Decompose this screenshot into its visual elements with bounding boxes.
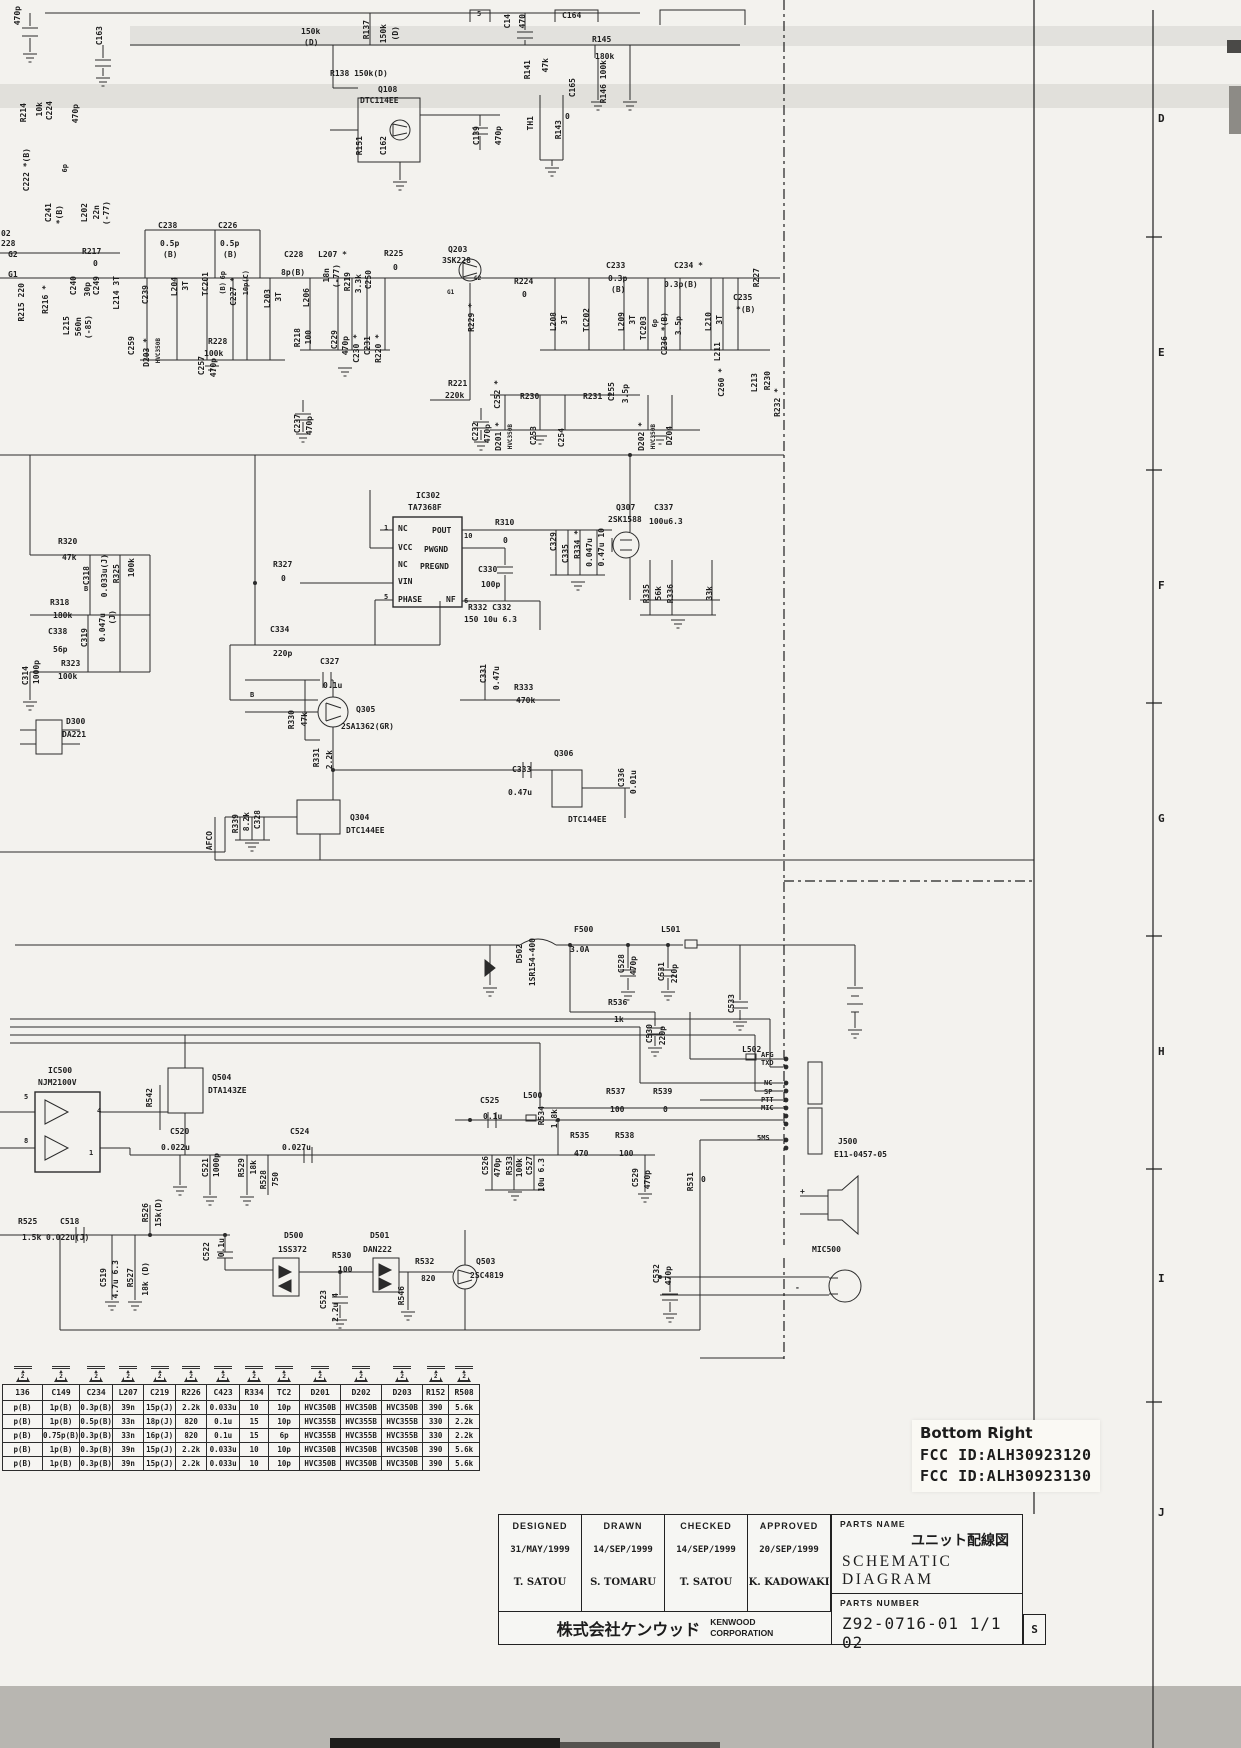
table-header-cell: R334 bbox=[240, 1385, 269, 1401]
component-label: C314 bbox=[22, 666, 30, 685]
component-label: 220k bbox=[445, 392, 464, 400]
table-cell: 5.6k bbox=[449, 1457, 480, 1471]
frame-row-letter: G bbox=[1158, 812, 1165, 825]
table-cell: 10 bbox=[240, 1457, 269, 1471]
component-label: C234 * bbox=[674, 262, 703, 270]
component-label: R143 bbox=[555, 120, 563, 139]
component-label: 470p bbox=[665, 1266, 673, 1285]
component-label: L211 bbox=[714, 342, 722, 361]
component-label: 5 bbox=[384, 594, 388, 601]
component-label: 0.3p bbox=[608, 275, 627, 283]
note-2-triangle-icon: 2 bbox=[429, 1370, 443, 1382]
table-cell: 33n bbox=[113, 1429, 144, 1443]
note-2-triangle-icon: 2 bbox=[89, 1370, 103, 1382]
component-label: 220p bbox=[273, 650, 292, 658]
approval-name: K. KADOWAKI bbox=[748, 1569, 830, 1588]
component-label: C236 *(B) bbox=[661, 312, 669, 355]
component-label: 4.7u 6.3 bbox=[112, 1260, 120, 1299]
company-name-en: KENWOOD CORPORATION bbox=[710, 1617, 773, 1638]
component-label: POUT bbox=[432, 527, 451, 535]
component-label: (B) bbox=[163, 251, 177, 259]
component-label: R546 bbox=[398, 1286, 406, 1305]
component-label: R225 bbox=[384, 250, 403, 258]
component-label: G1 bbox=[447, 290, 454, 296]
component-label: 470p bbox=[342, 336, 350, 355]
component-label: 8p(B) bbox=[281, 269, 305, 277]
component-label: 2.2u 4 bbox=[332, 1293, 340, 1322]
component-label: C518 bbox=[60, 1218, 79, 1226]
component-label: C524 bbox=[290, 1128, 309, 1136]
component-label: C231 bbox=[364, 336, 372, 355]
component-label: (D) bbox=[304, 39, 318, 47]
component-label: 02 bbox=[1, 230, 11, 238]
component-label: R335 bbox=[643, 584, 651, 603]
component-label: 18n bbox=[323, 268, 331, 282]
component-label: NC bbox=[398, 525, 408, 533]
note-triangle-cell: 2 bbox=[423, 1362, 449, 1385]
component-label: - bbox=[795, 1284, 800, 1292]
company-en-line1: KENWOOD bbox=[710, 1617, 755, 1627]
component-label: E11-0457-05 bbox=[834, 1151, 887, 1159]
component-label: 3.5p bbox=[622, 384, 630, 403]
table-cell: 10p bbox=[269, 1401, 300, 1415]
component-label: 228 bbox=[1, 240, 15, 248]
sheet-mark-box: S bbox=[1023, 1614, 1046, 1645]
table-cell: 390 bbox=[423, 1443, 449, 1457]
component-label: R318 bbox=[50, 599, 69, 607]
component-label: R230 bbox=[764, 371, 772, 390]
component-label: C529 bbox=[632, 1168, 640, 1187]
table-cell: 1p(B) bbox=[43, 1457, 80, 1471]
component-label: TXD bbox=[761, 1060, 774, 1067]
table-cell: 15p(J) bbox=[144, 1401, 176, 1415]
component-label: 5MS bbox=[757, 1135, 770, 1142]
table-cell: HVC350B bbox=[300, 1401, 341, 1415]
company-row: 株式会社ケンウッド KENWOOD CORPORATION bbox=[499, 1611, 831, 1644]
component-label: 8 bbox=[24, 1138, 28, 1145]
component-label: 1.8k bbox=[551, 1109, 559, 1128]
approval-name: T. SATOU bbox=[665, 1569, 747, 1588]
table-row: p(B)1p(B)0.5p(B)33n18p(J)8200.1u1510pHVC… bbox=[3, 1415, 480, 1429]
component-label: *(B) bbox=[736, 306, 755, 314]
component-label: R221 bbox=[448, 380, 467, 388]
component-label: 100 bbox=[610, 1106, 624, 1114]
component-label: C240 bbox=[70, 276, 78, 295]
component-label: L214 3T bbox=[113, 276, 121, 310]
component-label: R230 bbox=[520, 393, 539, 401]
component-label: 470k bbox=[516, 697, 535, 705]
component-label: 470p bbox=[72, 104, 80, 123]
table-cell: HVC355B bbox=[300, 1429, 341, 1443]
component-label: 6p bbox=[652, 319, 659, 327]
note-triangle-cell: 2 bbox=[341, 1362, 382, 1385]
component-label: G1 bbox=[8, 271, 18, 279]
frame-row-letter: E bbox=[1158, 346, 1165, 359]
approval-date: 14/SEP/1999 bbox=[582, 1539, 664, 1569]
component-label: 820 bbox=[421, 1275, 435, 1283]
parts-name-label: PARTS NAME bbox=[832, 1515, 1023, 1529]
table-cell: 390 bbox=[423, 1457, 449, 1471]
component-label: 0.3p(B) bbox=[664, 281, 698, 289]
component-label: 100p bbox=[481, 581, 500, 589]
component-label: 1k bbox=[614, 1016, 624, 1024]
component-label: 8.2k bbox=[243, 812, 251, 831]
table-row: p(B)1p(B)0.3p(B)39n15p(J)2.2k0.033u1010p… bbox=[3, 1457, 480, 1471]
component-label: R228 bbox=[208, 338, 227, 346]
table-cell: 1p(B) bbox=[43, 1415, 80, 1429]
table-cell: 0.033u bbox=[207, 1401, 240, 1415]
component-label: L210 bbox=[705, 312, 713, 331]
component-label: R539 bbox=[653, 1088, 672, 1096]
table-header-cell: C219 bbox=[144, 1385, 176, 1401]
component-label: 30p bbox=[84, 282, 92, 296]
component-label: R535 bbox=[570, 1132, 589, 1140]
table-cell: p(B) bbox=[3, 1429, 43, 1443]
component-label: R333 bbox=[514, 684, 533, 692]
component-label: C229 bbox=[331, 330, 339, 349]
note-triangle-cell: 2 bbox=[43, 1362, 80, 1385]
component-label: AFG bbox=[761, 1052, 774, 1059]
component-label: NC bbox=[764, 1080, 772, 1087]
table-cell: HVC350B bbox=[341, 1443, 382, 1457]
component-label: 0.033u(J) bbox=[101, 554, 109, 597]
component-label: 470p bbox=[644, 1170, 652, 1189]
table-cell: HVC350B bbox=[300, 1443, 341, 1457]
table-row: p(B)0.75p(B)0.3p(B)33n16p(J)8200.1u156pH… bbox=[3, 1429, 480, 1443]
note-2-triangle-icon: 2 bbox=[277, 1370, 291, 1382]
component-label: R219 bbox=[344, 272, 352, 291]
component-label: R141 bbox=[524, 60, 532, 79]
component-label: R310 bbox=[495, 519, 514, 527]
component-label: 470p bbox=[14, 6, 22, 25]
table-cell: 390 bbox=[423, 1401, 449, 1415]
component-label: G2 bbox=[8, 251, 18, 259]
component-label: C521 bbox=[202, 1158, 210, 1177]
component-label: 3T bbox=[629, 315, 637, 325]
table-row: p(B)1p(B)0.3p(B)39n15p(J)2.2k0.033u1010p… bbox=[3, 1443, 480, 1457]
component-label: C530 bbox=[646, 1024, 654, 1043]
approval-name: S. TOMARU bbox=[582, 1569, 664, 1588]
component-label: C228 bbox=[284, 251, 303, 259]
component-label: VCC bbox=[398, 544, 412, 552]
component-label: (D) bbox=[392, 26, 400, 40]
table-cell: 2.2k bbox=[176, 1457, 207, 1471]
component-label: R330 bbox=[288, 710, 296, 729]
table-cell: 1p(B) bbox=[43, 1443, 80, 1457]
table-cell: 5.6k bbox=[449, 1443, 480, 1457]
component-label: C520 bbox=[170, 1128, 189, 1136]
component-label: C164 bbox=[562, 12, 581, 20]
component-label: C328 bbox=[254, 810, 262, 829]
component-label: R227 bbox=[753, 268, 761, 287]
component-label: C259 bbox=[128, 336, 136, 355]
component-label: 3.0A bbox=[570, 946, 589, 954]
approval-column: DRAWN14/SEP/1999S. TOMARU bbox=[582, 1515, 665, 1611]
component-label: 0.047u bbox=[99, 613, 107, 642]
note-2-triangle-icon: 2 bbox=[121, 1370, 135, 1382]
approval-column: APPROVED20/SEP/1999K. KADOWAKI bbox=[748, 1515, 831, 1611]
component-label: C533 bbox=[728, 994, 736, 1013]
table-cell: 0.3p(B) bbox=[80, 1401, 113, 1415]
table-cell: 10p bbox=[269, 1443, 300, 1457]
table-header-cell: TC2 bbox=[269, 1385, 300, 1401]
component-label: 10u 6.3 bbox=[538, 1158, 546, 1192]
table-cell: 10 bbox=[240, 1443, 269, 1457]
component-label: C327 bbox=[320, 658, 339, 666]
component-label: 0.022u bbox=[161, 1144, 190, 1152]
component-label: HVC350B bbox=[651, 424, 657, 449]
component-label: C329 bbox=[550, 532, 558, 551]
note-2-triangle-icon: 2 bbox=[16, 1370, 30, 1382]
note-triangle-cell: 2 bbox=[382, 1362, 423, 1385]
component-label: 0 bbox=[281, 575, 286, 583]
component-label: 2SC4819 bbox=[470, 1272, 504, 1280]
component-label: C165 bbox=[569, 78, 577, 97]
approval-column: CHECKED14/SEP/1999T. SATOU bbox=[665, 1515, 748, 1611]
component-label: 15k(D) bbox=[155, 1198, 163, 1227]
table-cell: 2.2k bbox=[176, 1401, 207, 1415]
component-label: C318 bbox=[83, 566, 91, 585]
component-label: D202 * bbox=[638, 422, 646, 451]
component-label: Q306 bbox=[554, 750, 573, 758]
component-label: 0.1u bbox=[483, 1113, 502, 1121]
component-label: L208 bbox=[550, 312, 558, 331]
note-triangle-cell: 2 bbox=[300, 1362, 341, 1385]
component-label: R229 * bbox=[468, 303, 476, 332]
approval-role: APPROVED bbox=[748, 1515, 830, 1539]
component-label: C257 bbox=[198, 356, 206, 375]
component-label: R327 bbox=[273, 561, 292, 569]
component-label: R220 * bbox=[375, 334, 383, 363]
component-label: C14 bbox=[504, 14, 512, 28]
component-label: (-77) bbox=[333, 264, 341, 288]
component-label: R218 bbox=[294, 328, 302, 347]
component-label: *(B) bbox=[56, 205, 64, 224]
component-label: 56p bbox=[53, 646, 67, 654]
approval-column: DESIGNED31/MAY/1999T. SATOU bbox=[499, 1515, 582, 1611]
component-label: TC203 bbox=[640, 316, 648, 340]
component-label: PREGND bbox=[420, 563, 449, 571]
component-label: 220p bbox=[671, 964, 679, 983]
component-label: L209 bbox=[618, 312, 626, 331]
component-label: R542 bbox=[146, 1088, 154, 1107]
table-header-cell: C423 bbox=[207, 1385, 240, 1401]
component-label: R332 C332 bbox=[468, 604, 511, 612]
component-label: 2.2k bbox=[326, 750, 334, 769]
component-label: Q307 bbox=[616, 504, 635, 512]
component-label: 150k bbox=[380, 24, 388, 43]
component-label: 100k bbox=[516, 1158, 524, 1177]
table-cell: 16p(J) bbox=[144, 1429, 176, 1443]
component-label: Q108 bbox=[378, 86, 397, 94]
table-cell: 15p(J) bbox=[144, 1443, 176, 1457]
component-label: NC bbox=[398, 561, 408, 569]
note-triangle-cell: 2 bbox=[240, 1362, 269, 1385]
component-label: L202 bbox=[81, 203, 89, 222]
component-label: R334 * bbox=[574, 530, 582, 559]
component-label: 470p bbox=[484, 424, 492, 443]
component-label: 2SK1588 bbox=[608, 516, 642, 524]
schematic-sheet: 470pC163150k(D)R137150k(D)R138 150k(D)Q1… bbox=[0, 0, 1241, 1748]
component-label: 47k bbox=[62, 554, 76, 562]
component-label: B bbox=[84, 586, 88, 593]
frame-row-letter: D bbox=[1158, 112, 1165, 125]
table-header-cell: D201 bbox=[300, 1385, 341, 1401]
component-label: L206 bbox=[303, 288, 311, 307]
component-label: 10k bbox=[36, 102, 44, 116]
approval-date: 31/MAY/1999 bbox=[499, 1539, 581, 1569]
component-label: 0.47u bbox=[493, 666, 501, 690]
component-label: 22n bbox=[93, 205, 101, 219]
table-cell: HVC355B bbox=[341, 1429, 382, 1443]
component-label: 3.5p bbox=[675, 316, 683, 335]
component-label: C528 bbox=[618, 954, 626, 973]
approval-role: CHECKED bbox=[665, 1515, 747, 1539]
component-label: 47k bbox=[301, 712, 309, 726]
table-cell: p(B) bbox=[3, 1415, 43, 1429]
component-label: R538 bbox=[615, 1132, 634, 1140]
table-header-cell: C149 bbox=[43, 1385, 80, 1401]
component-label: L215 bbox=[63, 316, 71, 335]
component-label: C531 bbox=[658, 962, 666, 981]
component-label: R537 bbox=[606, 1088, 625, 1096]
table-header-cell: D203 bbox=[382, 1385, 423, 1401]
component-label: R532 bbox=[415, 1258, 434, 1266]
component-label: R138 150k(D) bbox=[330, 70, 388, 78]
component-label: 3T bbox=[182, 281, 190, 291]
table-cell: 5.6k bbox=[449, 1401, 480, 1415]
component-label: R151 bbox=[356, 136, 364, 155]
component-label: C334 bbox=[270, 626, 289, 634]
component-label: TC202 bbox=[583, 308, 591, 332]
component-label: 0.1u bbox=[323, 682, 342, 690]
frame-row-letter: I bbox=[1158, 1272, 1165, 1285]
component-label: J500 bbox=[838, 1138, 857, 1146]
component-label: R526 bbox=[142, 1203, 150, 1222]
component-label: 470p bbox=[306, 416, 314, 435]
component-label: C252 * bbox=[494, 380, 502, 409]
component-label: R534 bbox=[538, 1106, 546, 1125]
component-label: L502 bbox=[742, 1046, 761, 1054]
component-label: 2SA1362(GR) bbox=[341, 723, 394, 731]
component-label: 0 bbox=[93, 260, 98, 268]
table-cell: p(B) bbox=[3, 1457, 43, 1471]
company-name-jp: 株式会社ケンウッド bbox=[557, 1616, 701, 1640]
component-label: R533 bbox=[506, 1156, 514, 1175]
table-cell: 0.3p(B) bbox=[80, 1457, 113, 1471]
table-header-cell: R508 bbox=[449, 1385, 480, 1401]
component-label: 6p bbox=[220, 271, 227, 279]
component-label: 100 bbox=[305, 330, 313, 344]
component-label: 3SK228 bbox=[442, 257, 471, 265]
table-cell: p(B) bbox=[3, 1443, 43, 1457]
frame-row-letter: F bbox=[1158, 579, 1165, 592]
component-label: C224 bbox=[46, 101, 54, 120]
table-cell: 2.2k bbox=[449, 1415, 480, 1429]
component-label: 33k bbox=[706, 586, 714, 600]
component-label: C163 bbox=[96, 26, 104, 45]
component-label: 470 bbox=[519, 14, 527, 28]
frame-row-letter: J bbox=[1158, 1506, 1165, 1519]
table-cell: 2.2k bbox=[176, 1443, 207, 1457]
component-label: 1SS372 bbox=[278, 1246, 307, 1254]
component-label: 0.022u(J) bbox=[46, 1234, 89, 1242]
table-header-cell: R152 bbox=[423, 1385, 449, 1401]
component-label: R536 bbox=[608, 999, 627, 1007]
component-label: 0.01u bbox=[630, 770, 638, 794]
component-label: R339 bbox=[232, 814, 240, 833]
table-cell: 18p(J) bbox=[144, 1415, 176, 1429]
note-2-triangle-icon: 2 bbox=[354, 1370, 368, 1382]
component-label: (B) bbox=[611, 286, 625, 294]
component-label: 470p bbox=[495, 126, 503, 145]
table-cell: 0.1u bbox=[207, 1429, 240, 1443]
table-cell: HVC355B bbox=[300, 1415, 341, 1429]
component-label: TA7368F bbox=[408, 504, 442, 512]
component-label: C260 * bbox=[718, 368, 726, 397]
component-label: NJM2100V bbox=[38, 1079, 77, 1087]
component-label: R215 220 bbox=[18, 283, 26, 322]
table-cell: 15p(J) bbox=[144, 1457, 176, 1471]
table-cell: 10p bbox=[269, 1457, 300, 1471]
component-label: 100 bbox=[619, 1150, 633, 1158]
component-label: 560n bbox=[75, 317, 83, 336]
component-label: L500 bbox=[523, 1092, 542, 1100]
approval-date: 14/SEP/1999 bbox=[665, 1539, 747, 1569]
component-label: 0 bbox=[503, 537, 508, 545]
note-triangle-cell: 2 bbox=[176, 1362, 207, 1385]
frame-row-letter: H bbox=[1158, 1045, 1165, 1058]
component-label: 0 bbox=[663, 1106, 668, 1114]
table-cell: p(B) bbox=[3, 1401, 43, 1415]
approval-role: DRAWN bbox=[582, 1515, 664, 1539]
component-label: 0.1u bbox=[218, 1238, 226, 1257]
component-label: D500 bbox=[284, 1232, 303, 1240]
variant-table: 22222222222222136C149C234L207C219R226C42… bbox=[2, 1362, 480, 1471]
table-cell: 33n bbox=[113, 1415, 144, 1429]
component-label: C337 bbox=[654, 504, 673, 512]
component-label: R336 bbox=[667, 584, 675, 603]
component-label: DTA143ZE bbox=[208, 1087, 247, 1095]
component-label: DTC114EE bbox=[360, 97, 399, 105]
parts-name-section: PARTS NAME ユニット配線図 SCHEMATIC DIAGRAM PAR… bbox=[831, 1515, 1023, 1644]
component-label: C532 bbox=[653, 1264, 661, 1283]
component-label: C227 * bbox=[230, 277, 238, 306]
sticker-position-label: Bottom Right bbox=[920, 1424, 1092, 1442]
component-label: (-77) bbox=[103, 201, 111, 225]
note-triangle-cell: 2 bbox=[269, 1362, 300, 1385]
component-label: 1000p bbox=[213, 1153, 221, 1177]
component-label: 1000p bbox=[33, 660, 41, 684]
component-label: 0.5p bbox=[220, 240, 239, 248]
component-label: 56k bbox=[655, 586, 663, 600]
component-label: DTC144EE bbox=[568, 816, 607, 824]
note-triangle-cell: 2 bbox=[80, 1362, 113, 1385]
component-label: 0.047u bbox=[586, 538, 594, 567]
component-label: R525 bbox=[18, 1218, 37, 1226]
component-label: R325 bbox=[113, 564, 121, 583]
table-cell: 6p bbox=[269, 1429, 300, 1443]
component-label: C333 bbox=[512, 766, 531, 774]
component-label: 150 10u 6.3 bbox=[464, 616, 517, 624]
component-label: 470p bbox=[630, 956, 638, 975]
component-label: 0.47u 10 bbox=[598, 528, 606, 567]
note-2-triangle-icon: 2 bbox=[153, 1370, 167, 1382]
component-label: C330 bbox=[478, 566, 497, 574]
component-label: 150k bbox=[301, 28, 320, 36]
component-label: 10 bbox=[464, 533, 472, 540]
component-label: R137 bbox=[363, 20, 371, 39]
